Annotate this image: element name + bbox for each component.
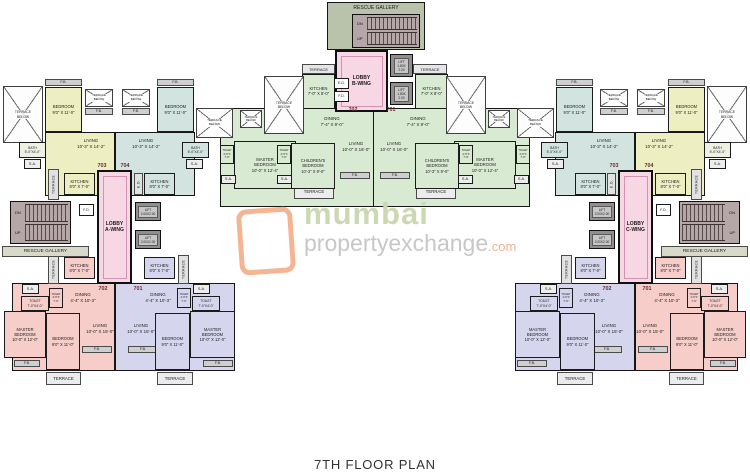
kitchen-a704: KITCHEN8'0" X 7'-0" [144,173,175,195]
terrace-c701: TERRACE [669,372,704,385]
lift-a-1: LIFT2.00X2.00 [135,202,161,221]
living-a704-label: LIVING10'-3" X 14'-2" [125,137,167,150]
toilet-b701-2: TOILET4'-6"X7'-6" [459,145,473,164]
fb-strip: F.B. [592,346,622,353]
fd-box-a: F.D. [79,204,94,216]
living-a702-label: LIVING10'-0" X 15'-0" [80,322,120,335]
terrace-below-bc-3: TERRACEBELOW [446,76,486,134]
sa-b701-1: S.A. [514,175,529,184]
flat-number-a702: 702 [95,285,111,293]
living-a703-label: LIVING10'-3" X 14'-2" [70,137,112,150]
terrace-a702: TERRACE [46,372,81,385]
fb-strip: F.B. [203,360,233,367]
terrace-a701: TERRACE [157,372,193,385]
watermark-text: mumbai propertyexchange.com [304,198,516,256]
terrace-below-ab-3: TERRACEBELOW [264,76,304,134]
terrace-vert-a-702: TERRACE [48,255,59,284]
fd-box-c: F.D. [656,204,671,216]
fb-strip: F.B. [340,172,370,179]
master-bedroom-a702: MASTERBEDROOM10'-0" X 12'-0" [4,311,46,358]
toilet-b702-1: TOILET4'-6"X7'-6" [220,145,234,164]
master-bedroom-c701: MASTERBEDROOM10'-0" X 12'-0" [704,311,746,358]
lobby-a-shaft: LOBBYA-WING [97,170,132,284]
terrace-c702: TERRACE [557,372,593,385]
fb-strip: F.B. [517,360,547,367]
fb-strip: F.B. [122,108,150,115]
sa-a703: S.A. [24,159,41,169]
sa-b702-2: S.A. [277,175,292,184]
kitchen-b702-label: KITCHEN7'-0" X 8'-0" [303,84,334,98]
fb-strip: F.B. [668,79,705,86]
living-c703-label: LIVING10'-3" X 14'-2" [583,137,625,150]
terrace-below-a-mid2: TERRACEBELOW [122,89,150,107]
rescue-gallery-b-label: RESCUE GALLERY [329,3,423,13]
lift-a-2: LIFT2.00X2.00 [135,230,161,249]
dining-b702-label: DINING7'-4" X 9'-0" [312,115,352,128]
toilet-a702: TOILET7'-0"X4'-0" [21,296,49,311]
terrace-vert-c-701: TERRACE [691,255,702,284]
fb-strip: F.B. [600,108,628,115]
sa-b701-2: S.A. [458,175,473,184]
flat-number-c702: 702 [599,285,615,293]
childrens-bedroom-b702: CHILDREN'SBEDROOM10'-3" X 9'-0" [291,143,335,189]
toilet-a701: TOILET7'-0"X4'-0" [192,296,220,311]
bedroom-c702: BEDROOM9'0" X 11'-0" [560,313,595,370]
flat-number-a704: 704 [117,162,133,170]
flat-number-a701: 701 [130,285,146,293]
stairs-c: DNUP [679,201,740,244]
fb-strip: F.B. [556,79,593,86]
sa-a701: S.A. [193,284,210,294]
fb-strip: F.B. [85,108,113,115]
watermark-brand-bottom: propertyexchange [304,230,488,256]
kitchen-c702: KITCHEN8'0" X 7'-0" [575,257,606,279]
terrace-strip-b-left: TERRACE [302,64,335,74]
terrace-below-bc-2: TERRACEBELOW [488,110,510,128]
kitchen-a702: KITCHEN8'0" X 7'-0" [64,257,95,279]
ed-duct-a: E.D. [134,173,143,195]
fb-strip: F.B. [710,360,736,367]
kitchen-a701: KITCHEN8'0" X 7'-0" [144,257,175,279]
sa-b702-1: S.A. [221,175,236,184]
rescue-gallery-c: RESCUE GALLERY [661,246,748,257]
terrace-below-bc-1: TERRACEBELOW [517,108,554,138]
toilet-small-c702: TOILET4'-6"X7'-6" [559,288,573,308]
living-c701-label: LIVING10'-0" X 15'-0" [630,322,670,335]
floor-plan-canvas: TERRACEBELOWTERRACEBELOWTERRACEBELOWTERR… [0,0,750,476]
bedroom-a704: BEDROOM9'0" X 11'-0" [157,87,194,132]
sa-c702: S.A. [540,284,557,294]
bath-c703: BATH5'-0"X4'-0" [541,142,568,158]
flat-number-c704: 704 [641,162,657,170]
bath-c704: BATH5'-0"X4'-0" [704,142,731,158]
fb-strip: F.B. [157,79,194,86]
master-bedroom-a701: MASTERBEDROOM10'-0" X 12'-0" [190,311,235,358]
terrace-below-c-mid2: TERRACEBELOW [600,89,628,107]
terrace-strip-b-right: TERRACE [413,64,447,74]
lift-c-2: LIFT2.00X2.00 [589,230,615,249]
stairs-b: DNUP [352,14,420,48]
kitchen-c703: KITCHEN8'0" X 7'-0" [575,173,606,195]
fb-strip: F.B. [380,172,410,179]
bedroom-c701: BEDROOM9'0" X 11'-0" [670,313,704,370]
terrace-below-c-mid1: TERRACEBELOW [637,89,665,107]
fb-strip: F.B. [637,108,665,115]
sa-a704: S.A. [186,159,203,169]
fb-strip: F.B. [14,360,40,367]
lobby-c-shaft: LOBBYC-WING [618,170,653,284]
sa-c704: S.A. [709,159,726,169]
watermark-bracket-icon [236,206,296,276]
toilet-small-c701: TOILET4'-6"X7'-6" [687,288,701,308]
lift-b-1: LIFT1.80X2.00 [390,54,413,77]
terrace-below-a-outer: TERRACEBELOW [3,86,43,143]
flat-number-c701: 701 [639,285,655,293]
flat-number-c703: 703 [606,162,622,170]
flat-number-a703: 703 [94,162,110,170]
terrace-vert-a-703: TERRACE [48,169,59,200]
flat-number-b702: 702 [345,106,361,114]
terrace-vert-c-702: TERRACE [561,255,572,284]
rescue-gallery-a: RESCUE GALLERY [2,246,89,257]
terrace-below-a-mid1: TERRACEBELOW [85,89,113,107]
living-c702-label: LIVING10'-0" X 15'-0" [589,322,629,335]
terrace-below-ab-2: TERRACEBELOW [240,110,262,128]
sa-c701: S.A. [711,284,728,294]
bath-a704: BATH5'-0"X4'-0" [182,142,209,158]
lift-c-1: LIFT2.00X2.00 [589,202,615,221]
fb-strip: F.B. [638,346,668,353]
watermark-tld: .com [488,239,516,254]
toilet-b702-2: TOILET4'-6"X7'-6" [277,145,291,164]
watermark-brand-top: mumbai [304,198,516,231]
childrens-bedroom-b701: CHILDREN'SBEDROOM10'-3" X 9'-0" [415,143,459,189]
master-bedroom-c702: MASTERBEDROOM10'-0" X 12'-0" [515,311,560,358]
bedroom-a701: BEDROOM9'0" X 11'-0" [155,313,190,370]
bedroom-c703: BEDROOM9'0" X 11'-0" [556,87,593,132]
bedroom-c704: BEDROOM9'0" X 11'-0" [668,87,705,132]
watermark: mumbai propertyexchange.com [238,198,518,282]
toilet-b701-1: TOILET4'-6"X7'-6" [516,145,530,164]
fb-strip: F.B. [82,346,112,353]
terrace-vert-c-704: TERRACE [691,169,702,200]
toilet-c701: TOILET7'-0"X4'-0" [701,296,729,311]
dining-b701-label: DINING7'-4" X 9'-0" [398,115,438,128]
terrace-below-ab-1: TERRACEBELOW [196,108,233,138]
lift-b-2: LIFT1.80X2.00 [390,82,413,105]
toilet-small-a702: TOILET4'-6"X7'-6" [49,288,63,308]
kitchen-b701-label: KITCHEN7'-0" X 8'-0" [416,84,447,98]
ed-duct-c: E.D. [607,173,616,195]
living-b702-label: LIVING10'-0" X 16'-0" [336,140,376,153]
bedroom-a702: BEDROOM9'0" X 11'-0" [46,313,80,370]
toilet-small-a701: TOILET4'-6"X7'-6" [177,288,191,308]
terrace-below-c-outer: TERRACEBELOW [707,86,747,143]
fd-box-b: F.D. [334,91,349,102]
sa-a702: S.A. [22,284,39,294]
sa-c703: S.A. [547,159,564,169]
toilet-c702: TOILET7'-0"X4'-0" [530,296,558,311]
living-c704-label: LIVING10'-3" X 14'-2" [638,137,680,150]
kitchen-c701: KITCHEN8'0" X 7'-0" [655,257,686,279]
kitchen-c704: KITCHEN8'0" X 7'-0" [655,173,686,195]
stairs-a: DNUP [10,201,71,244]
flat-number-b701: 701 [383,106,399,114]
terrace-vert-a-701: TERRACE [178,255,189,284]
bath-a703: BATH5'-0"X4'-0" [19,142,46,158]
ed-box-b: E.D. [334,78,349,89]
plan-title: 7TH FLOOR PLAN [0,457,750,472]
fb-strip: F.B. [45,79,82,86]
living-b701-label: LIVING10'-0" X 16'-0" [374,140,414,153]
bedroom-a703: BEDROOM9'0" X 11'-0" [45,87,82,132]
fb-strip: F.B. [128,346,158,353]
kitchen-a703: KITCHEN8'0" X 7'-0" [64,173,95,195]
